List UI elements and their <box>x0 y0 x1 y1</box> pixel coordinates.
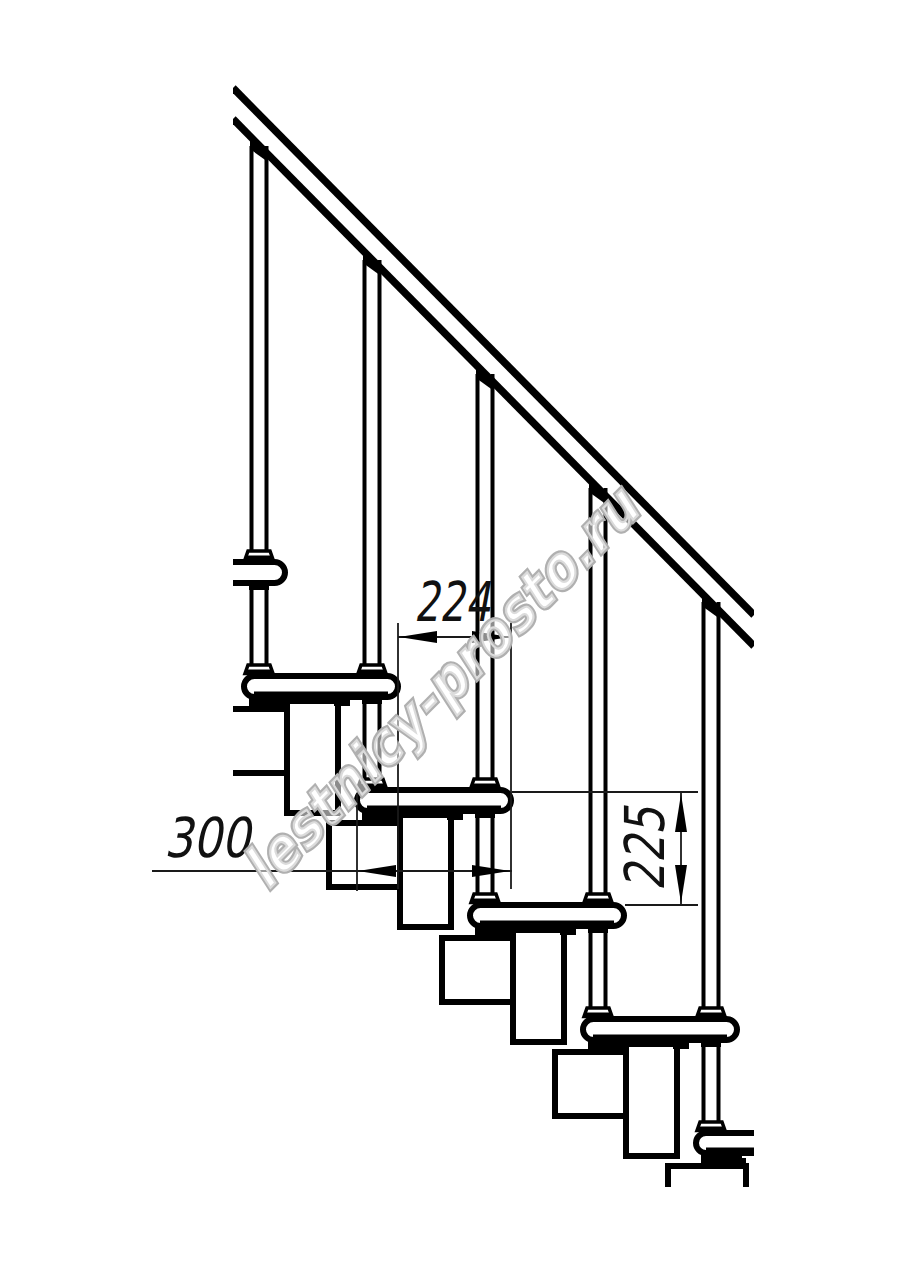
module-bridge <box>555 1052 633 1116</box>
staircase-drawing-page: 224 300 225 lestnicy-prosto.ru <box>0 0 914 1280</box>
dimension-label-riser-height: 225 <box>613 805 677 891</box>
collar-tab <box>701 1038 721 1047</box>
module-hanger <box>626 1044 677 1156</box>
module-bridge <box>442 938 520 1002</box>
staircase-technical-drawing: 224 300 225 lestnicy-prosto.ru <box>0 0 914 1280</box>
baluster <box>252 146 267 676</box>
module-hanger <box>513 930 564 1042</box>
collar-tab <box>249 581 269 590</box>
collar-tab <box>475 809 495 818</box>
baluster <box>704 602 719 1133</box>
collar-tab <box>588 924 608 933</box>
